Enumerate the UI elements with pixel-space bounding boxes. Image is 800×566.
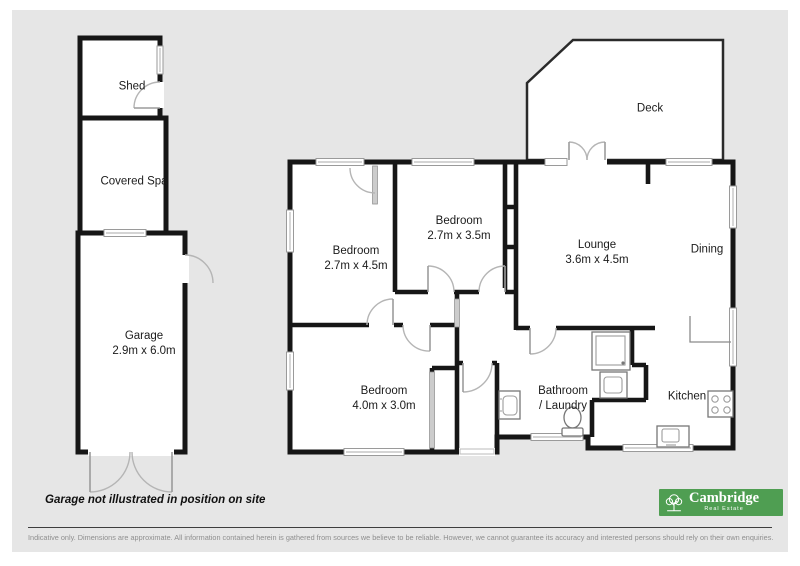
entry-threshold [460,449,494,454]
room-label-bedroom-3: Bedroom 4.0m x 3.0m [352,384,415,414]
room-label-bathroom-laundry: Bathroom / Laundry [538,384,588,414]
room-name: Lounge [565,238,628,253]
room-name: Dining [691,243,724,258]
agency-logo: Cambridge Real Estate [659,489,783,516]
room-label-dining: Dining [691,243,724,258]
room-label-bedroom-1: Bedroom 2.7m x 4.5m [324,244,387,274]
room-name: Bedroom [324,244,387,259]
room-dims: 2.9m x 6.0m [112,344,175,359]
disclaimer-text: Indicative only. Dimensions are approxim… [28,533,773,542]
room-dims: 2.7m x 3.5m [427,229,490,244]
room-name: Kitchen [668,390,706,405]
room-dims: 2.7m x 4.5m [324,259,387,274]
room-dims: 4.0m x 3.0m [352,399,415,414]
room-name: Bathroom [538,384,588,399]
room-label-covered-spa: Covered Spa [100,175,167,190]
laundry-tub-fixture [600,372,627,398]
room-label-lounge: Lounge 3.6m x 4.5m [565,238,628,268]
room-name: Bedroom [427,214,490,229]
room-name: Covered Spa [100,175,167,190]
stove-fixture [708,391,733,417]
room-label-garage: Garage 2.9m x 6.0m [112,329,175,359]
agency-tagline: Real Estate [704,506,743,514]
floor-plan-canvas: Shed Covered Spa Garage 2.9m x 6.0m Bedr… [12,10,788,552]
room-name: Garage [112,329,175,344]
bathroom-sink-fixture [499,391,520,419]
shower-fixture [592,332,630,370]
room-label-bedroom-2: Bedroom 2.7m x 3.5m [427,214,490,244]
room-dims: / Laundry [538,399,588,414]
room-label-shed: Shed [119,80,146,95]
room-name: Bedroom [352,384,415,399]
deck-outline [527,40,723,160]
agency-logo-text: Cambridge Real Estate [689,491,759,513]
shed-outline [80,38,160,118]
tree-icon [663,492,685,514]
room-name: Shed [119,80,146,95]
agency-name: Cambridge [689,491,759,506]
floor-plan-page: Shed Covered Spa Garage 2.9m x 6.0m Bedr… [0,0,800,566]
kitchen-sink-fixture [657,426,689,447]
garage-note: Garage not illustrated in position on si… [45,494,265,506]
footer-divider [28,527,772,528]
room-label-deck: Deck [637,102,663,117]
room-dims: 3.6m x 4.5m [565,253,628,268]
room-name: Deck [637,102,663,117]
room-label-kitchen: Kitchen [668,390,706,405]
